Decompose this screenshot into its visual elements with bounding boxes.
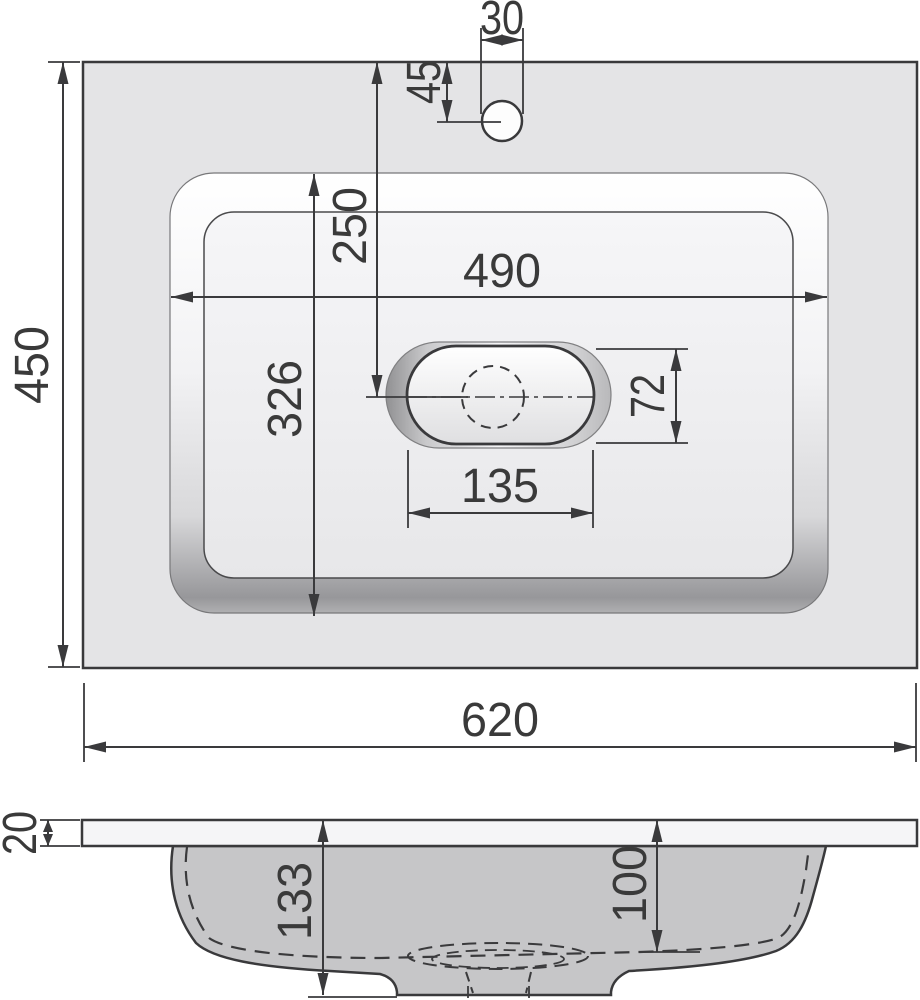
arrowhead [318, 973, 329, 995]
dim-label-overall-width: 620 [461, 694, 539, 747]
countertop-slab [82, 820, 917, 846]
dim-label-basin-inner-depth: 100 [604, 845, 657, 923]
arrowhead [84, 742, 106, 753]
drain-recess [407, 346, 594, 444]
dim-label-basin-height: 133 [269, 862, 322, 940]
dim-label-faucet-hole-offset: 45 [398, 60, 451, 104]
dim-label-bowl-opening-depth: 326 [259, 360, 312, 438]
dim-label-bowl-opening-width: 490 [463, 245, 541, 298]
drawing-svg: 30 45 250 490 [0, 0, 920, 1000]
dim-overall-width: 620 [84, 683, 916, 762]
dim-label-overall-depth: 450 [6, 326, 59, 404]
dim-label-faucet-hole-diameter: 30 [480, 0, 524, 45]
arrowhead [894, 742, 916, 753]
arrowhead [58, 645, 69, 667]
dim-countertop-thickness: 20 [0, 811, 80, 855]
dim-label-countertop-thickness: 20 [0, 811, 47, 855]
section-view: 20 133 100 [0, 811, 917, 998]
dim-label-drain-center-offset: 250 [324, 187, 377, 265]
dim-label-drain-recess-width: 72 [622, 374, 675, 418]
arrowhead [58, 62, 69, 84]
top-view: 30 45 250 490 [6, 0, 917, 762]
faucet-hole [482, 101, 522, 141]
dim-overall-depth: 450 [6, 62, 80, 667]
dim-label-drain-recess-length: 135 [461, 460, 539, 513]
washbasin-dimension-drawing: 30 45 250 490 [0, 0, 920, 1000]
